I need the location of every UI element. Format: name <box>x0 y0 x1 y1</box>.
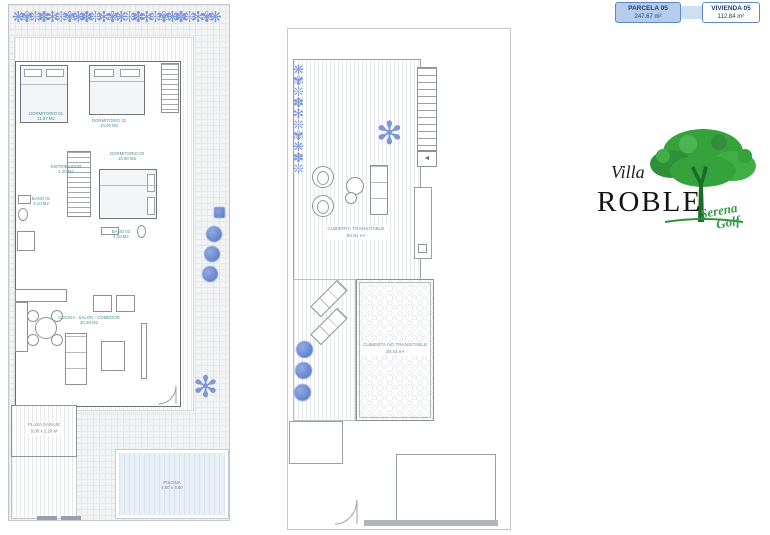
door-arc-icon <box>334 499 358 525</box>
room-area: 40.29 M2 <box>58 321 119 326</box>
side-table <box>345 192 357 204</box>
entrance-mark <box>37 516 57 520</box>
hedge-icon: ❋✾❊✽✻❊✾❋✽❊✻✾❋❊✽✻❊✾❋✽❊✻✾❋ <box>12 7 226 33</box>
stairs <box>417 67 437 151</box>
room-label-dormitorio2: DORMITORIO 02 10.46 M2 <box>92 119 126 129</box>
room-area: 4.20 M2 <box>51 170 82 175</box>
bush-icon <box>295 362 312 379</box>
bush-icon <box>202 266 218 282</box>
door-arc-icon <box>157 385 177 405</box>
room-area: 11.87 M2 <box>29 117 63 122</box>
palm-icon: ✻ <box>376 117 403 149</box>
toilet <box>137 225 146 238</box>
tv-unit <box>141 323 147 379</box>
room-area: 5.00 x 2.20 M <box>26 429 62 435</box>
parcela-info-box: PARCELA 05 247.67 m² <box>615 2 681 23</box>
room-label-transitable: CUBIERTA TRANSITABLE 84.91 m² <box>325 226 387 240</box>
sofa <box>370 165 388 215</box>
round-chair <box>312 195 334 217</box>
room-area: 4.10 M2 <box>32 202 50 207</box>
room-area: 10.46 M2 <box>92 124 126 129</box>
pillow <box>24 69 42 77</box>
room-label-bano2: BAÑO 02 4.10 M2 <box>112 230 130 240</box>
toilet <box>18 208 28 221</box>
dining-chair <box>27 334 39 346</box>
bush-icon <box>206 226 222 242</box>
dining-table <box>35 317 57 339</box>
room-area: 84.91 m² <box>325 233 387 240</box>
parcela-area: 247.67 m² <box>616 13 680 21</box>
pillow <box>147 197 155 215</box>
bush-icon <box>296 341 313 358</box>
stair-arrow-icon: ◄ <box>417 151 437 167</box>
armchair <box>93 295 112 312</box>
room-label-garaje: PLAZA GARAJE 5.00 x 2.20 M <box>26 423 62 436</box>
driveway <box>11 457 77 519</box>
room-label-no-transitable: CUBIERTA NO TRANSITABLE 28.44 m² <box>361 342 430 356</box>
room-area: 28.44 m² <box>361 349 430 356</box>
room-label-dormitorio3: DORMITORIO 03 10.80 M2 <box>110 152 144 162</box>
bush-icon <box>204 246 220 262</box>
wardrobe <box>161 63 179 113</box>
pillow <box>46 69 64 77</box>
pillow <box>94 69 114 77</box>
logo-golf-line: Golf <box>715 214 741 231</box>
room-area: 4.60 x 3.00 <box>161 486 182 491</box>
villa-roble-logo: Villa ROBLE Serena Golf <box>597 128 769 246</box>
bush-icon <box>294 384 311 401</box>
ground-floor-plan: ❋✾❊✽✻❊✾❋✽❊✻✾❋❊✽✻❊✾❋✽❊✻✾❋ <box>8 4 230 521</box>
vivienda-label: VIVIENDA 05 <box>703 5 759 13</box>
coffee-table <box>101 341 125 371</box>
parcela-label: PARCELA 05 <box>616 5 680 13</box>
pillow <box>120 69 140 77</box>
floorplan-sheet: ❋✾❊✽✻❊✾❋✽❊✻✾❋❊✽✻❊✾❋✽❊✻✾❋ <box>0 0 770 535</box>
sink <box>18 195 31 204</box>
vivienda-area: 112.84 m² <box>703 13 759 21</box>
sofa <box>65 333 87 385</box>
room-name: PLAZA GARAJE <box>26 423 62 429</box>
room-label-distribuidor: DISTRIBUIDOR 4.20 M2 <box>51 165 82 175</box>
round-chair <box>312 166 334 188</box>
info-connector <box>681 6 702 19</box>
bed <box>89 65 145 115</box>
bed <box>99 169 157 219</box>
planter-row-icon: ❋✾❊✽✻❊✾❋✽❊ <box>292 63 307 213</box>
pillow <box>147 174 155 192</box>
kitchen-counter <box>15 289 67 302</box>
roof-plan: ❋✾❊✽✻❊✾❋✽❊ ✻ ◄ CUBIERTA TRANSITABLE 84.9… <box>287 28 511 530</box>
palm-icon: ✻ <box>193 373 218 403</box>
room-area: 10.80 M2 <box>110 157 144 162</box>
logo-villa-text: Villa <box>611 162 645 183</box>
sink <box>418 244 427 253</box>
logo-serena-golf-text: Serena Golf <box>699 201 741 233</box>
room-label-bano1: BAÑO 01 4.10 M2 <box>32 197 50 207</box>
wardrobe <box>67 151 91 217</box>
entrance-mark <box>61 516 81 520</box>
lower-room-outline <box>396 454 496 524</box>
room-label-dormitorio1: DORMITORIO 01 11.87 M2 <box>29 112 63 122</box>
logo-roble-text: ROBLE <box>597 186 702 219</box>
vivienda-info-box: VIVIENDA 05 112.84 m² <box>702 2 760 23</box>
shower <box>17 231 35 251</box>
room-name: CUBIERTA TRANSITABLE <box>325 226 387 233</box>
lower-volume-outline <box>289 421 343 464</box>
room-label-salon: COCINA - SALÓN - COMEDOR 40.29 M2 <box>58 316 119 326</box>
plot-info-panel: PARCELA 05 247.67 m² VIVIENDA 05 112.84 … <box>615 2 760 23</box>
room-label-piscina: PISCINA 4.60 x 3.00 <box>161 481 182 491</box>
threshold-strip <box>364 520 498 526</box>
room-area: 4.10 M2 <box>112 235 130 240</box>
kitchen-counter <box>15 302 28 352</box>
bush-icon <box>214 207 225 218</box>
armchair <box>116 295 135 312</box>
room-name: CUBIERTA NO TRANSITABLE <box>361 342 430 349</box>
